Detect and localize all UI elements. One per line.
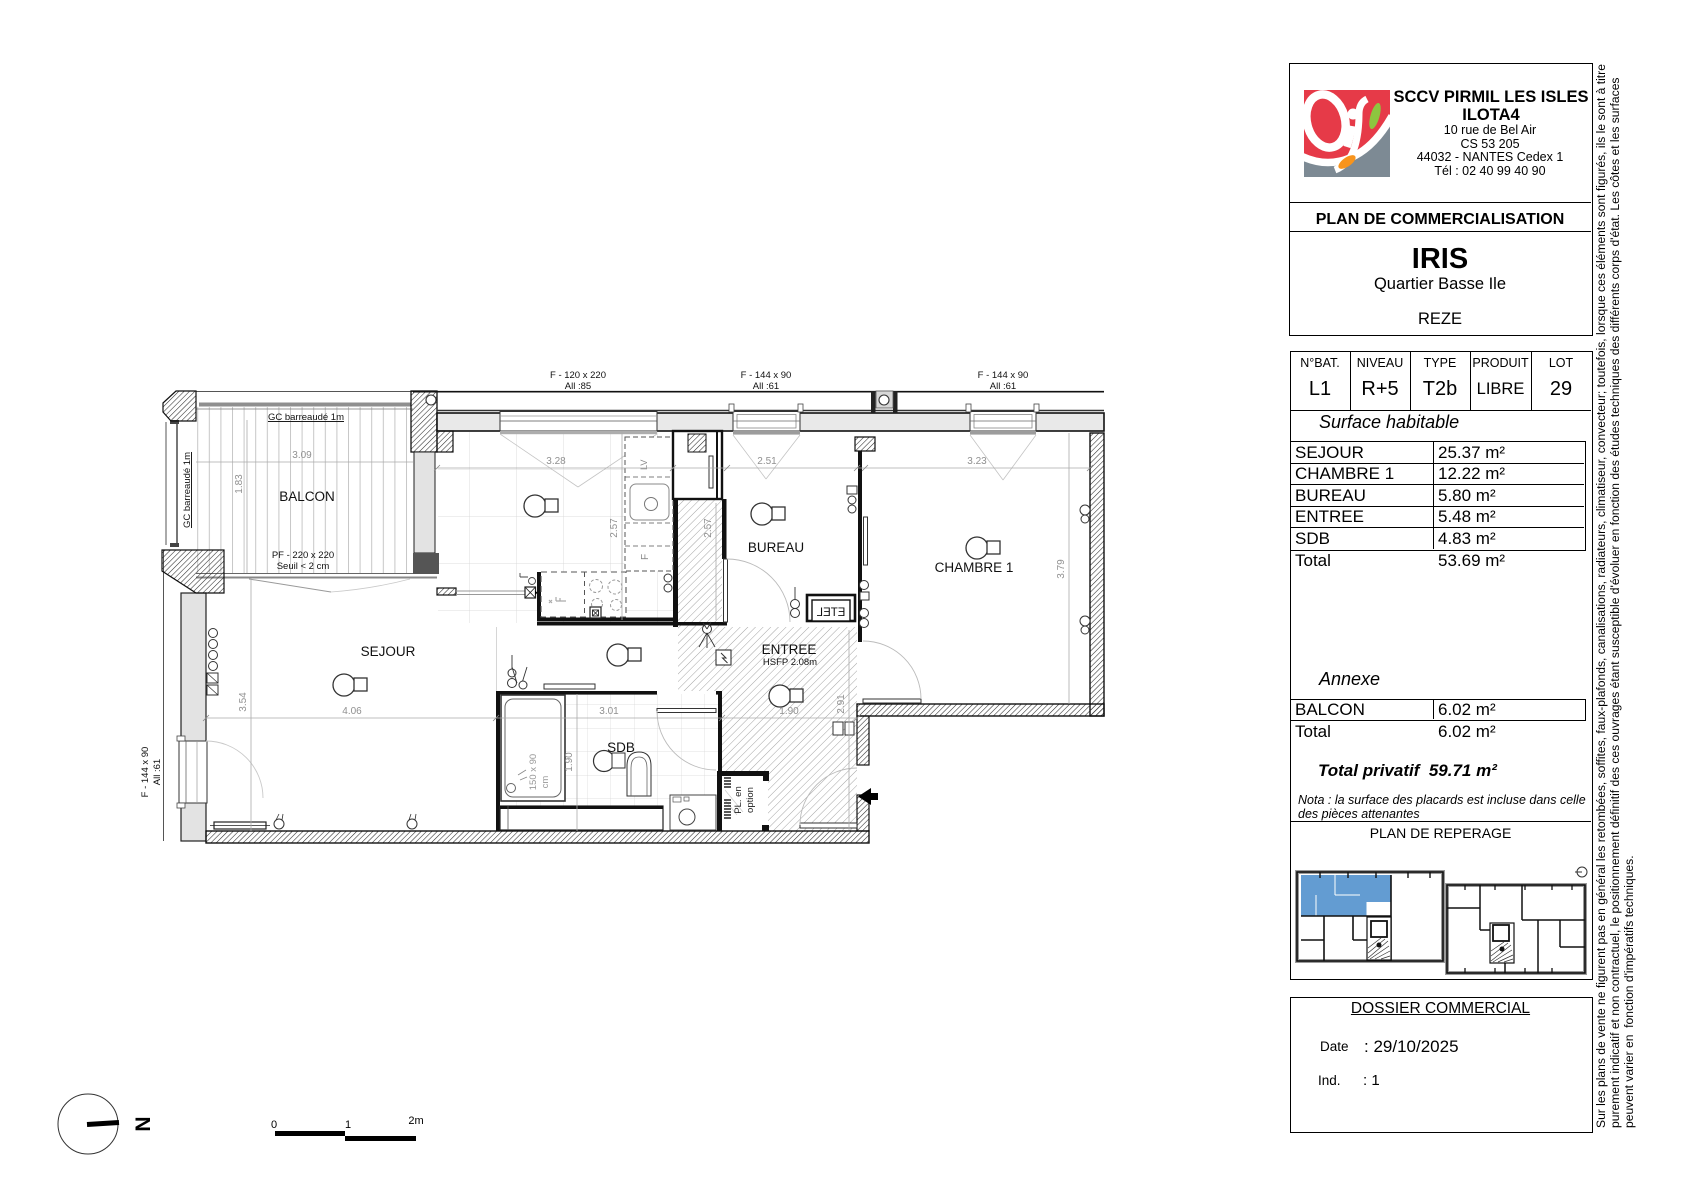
svg-text:All :61: All :61 bbox=[753, 381, 779, 392]
svg-text:N: N bbox=[132, 1116, 155, 1131]
svg-text:SDB: SDB bbox=[607, 740, 635, 755]
svg-text:3.09: 3.09 bbox=[292, 450, 312, 461]
svg-text:All :61: All :61 bbox=[990, 381, 1016, 392]
svg-text:2.57: 2.57 bbox=[703, 518, 714, 538]
svg-text:2.57: 2.57 bbox=[609, 518, 620, 538]
svg-text:F: F bbox=[640, 554, 651, 560]
svg-text:4.06: 4.06 bbox=[342, 706, 362, 717]
svg-text:option: option bbox=[745, 787, 756, 813]
svg-text:3.28: 3.28 bbox=[546, 456, 566, 467]
svg-text:CHAMBRE 1: CHAMBRE 1 bbox=[935, 560, 1014, 575]
svg-text:F - 144 x 90: F - 144 x 90 bbox=[741, 370, 792, 381]
svg-text:3.54: 3.54 bbox=[238, 692, 249, 712]
svg-text:2.91: 2.91 bbox=[836, 694, 847, 714]
svg-text:2.51: 2.51 bbox=[757, 456, 777, 467]
svg-text:F - 120 x 220: F - 120 x 220 bbox=[550, 370, 606, 381]
svg-text:LV: LV bbox=[639, 460, 649, 470]
svg-text:3.23: 3.23 bbox=[967, 456, 987, 467]
svg-text:1: 1 bbox=[345, 1119, 351, 1131]
svg-text:All :61: All :61 bbox=[152, 759, 163, 785]
svg-text:All :85: All :85 bbox=[565, 381, 591, 392]
svg-text:cm: cm bbox=[540, 776, 551, 789]
svg-text:0: 0 bbox=[271, 1119, 277, 1131]
svg-text:SEJOUR: SEJOUR bbox=[361, 644, 416, 659]
svg-text:Seuil < 2 cm: Seuil < 2 cm bbox=[277, 561, 330, 572]
svg-text:BUREAU: BUREAU bbox=[748, 540, 804, 555]
svg-text:2m: 2m bbox=[408, 1115, 423, 1127]
svg-text:ENTREE: ENTREE bbox=[762, 642, 817, 657]
svg-text:ETEL: ETEL bbox=[816, 607, 845, 619]
svg-text:3.01: 3.01 bbox=[599, 706, 619, 717]
svg-text:BALCON: BALCON bbox=[279, 489, 335, 504]
svg-text:PL. en: PL. en bbox=[733, 786, 744, 813]
svg-text:150 x 90: 150 x 90 bbox=[528, 754, 539, 790]
svg-text:1.90: 1.90 bbox=[564, 752, 575, 772]
svg-text:GC barreaudé 1m: GC barreaudé 1m bbox=[182, 452, 193, 528]
svg-text:F - 144 x 90: F - 144 x 90 bbox=[978, 370, 1029, 381]
svg-text:HSFP 2.08m: HSFP 2.08m bbox=[763, 657, 817, 668]
svg-text:1.83: 1.83 bbox=[234, 474, 245, 494]
svg-text:PF - 220 x 220: PF - 220 x 220 bbox=[272, 550, 334, 561]
svg-text:F - 144 x 90: F - 144 x 90 bbox=[140, 747, 151, 798]
svg-text:3.79: 3.79 bbox=[1056, 559, 1067, 579]
svg-text:1.90: 1.90 bbox=[779, 706, 799, 717]
svg-text:GC barreaudé 1m: GC barreaudé 1m bbox=[268, 412, 344, 423]
